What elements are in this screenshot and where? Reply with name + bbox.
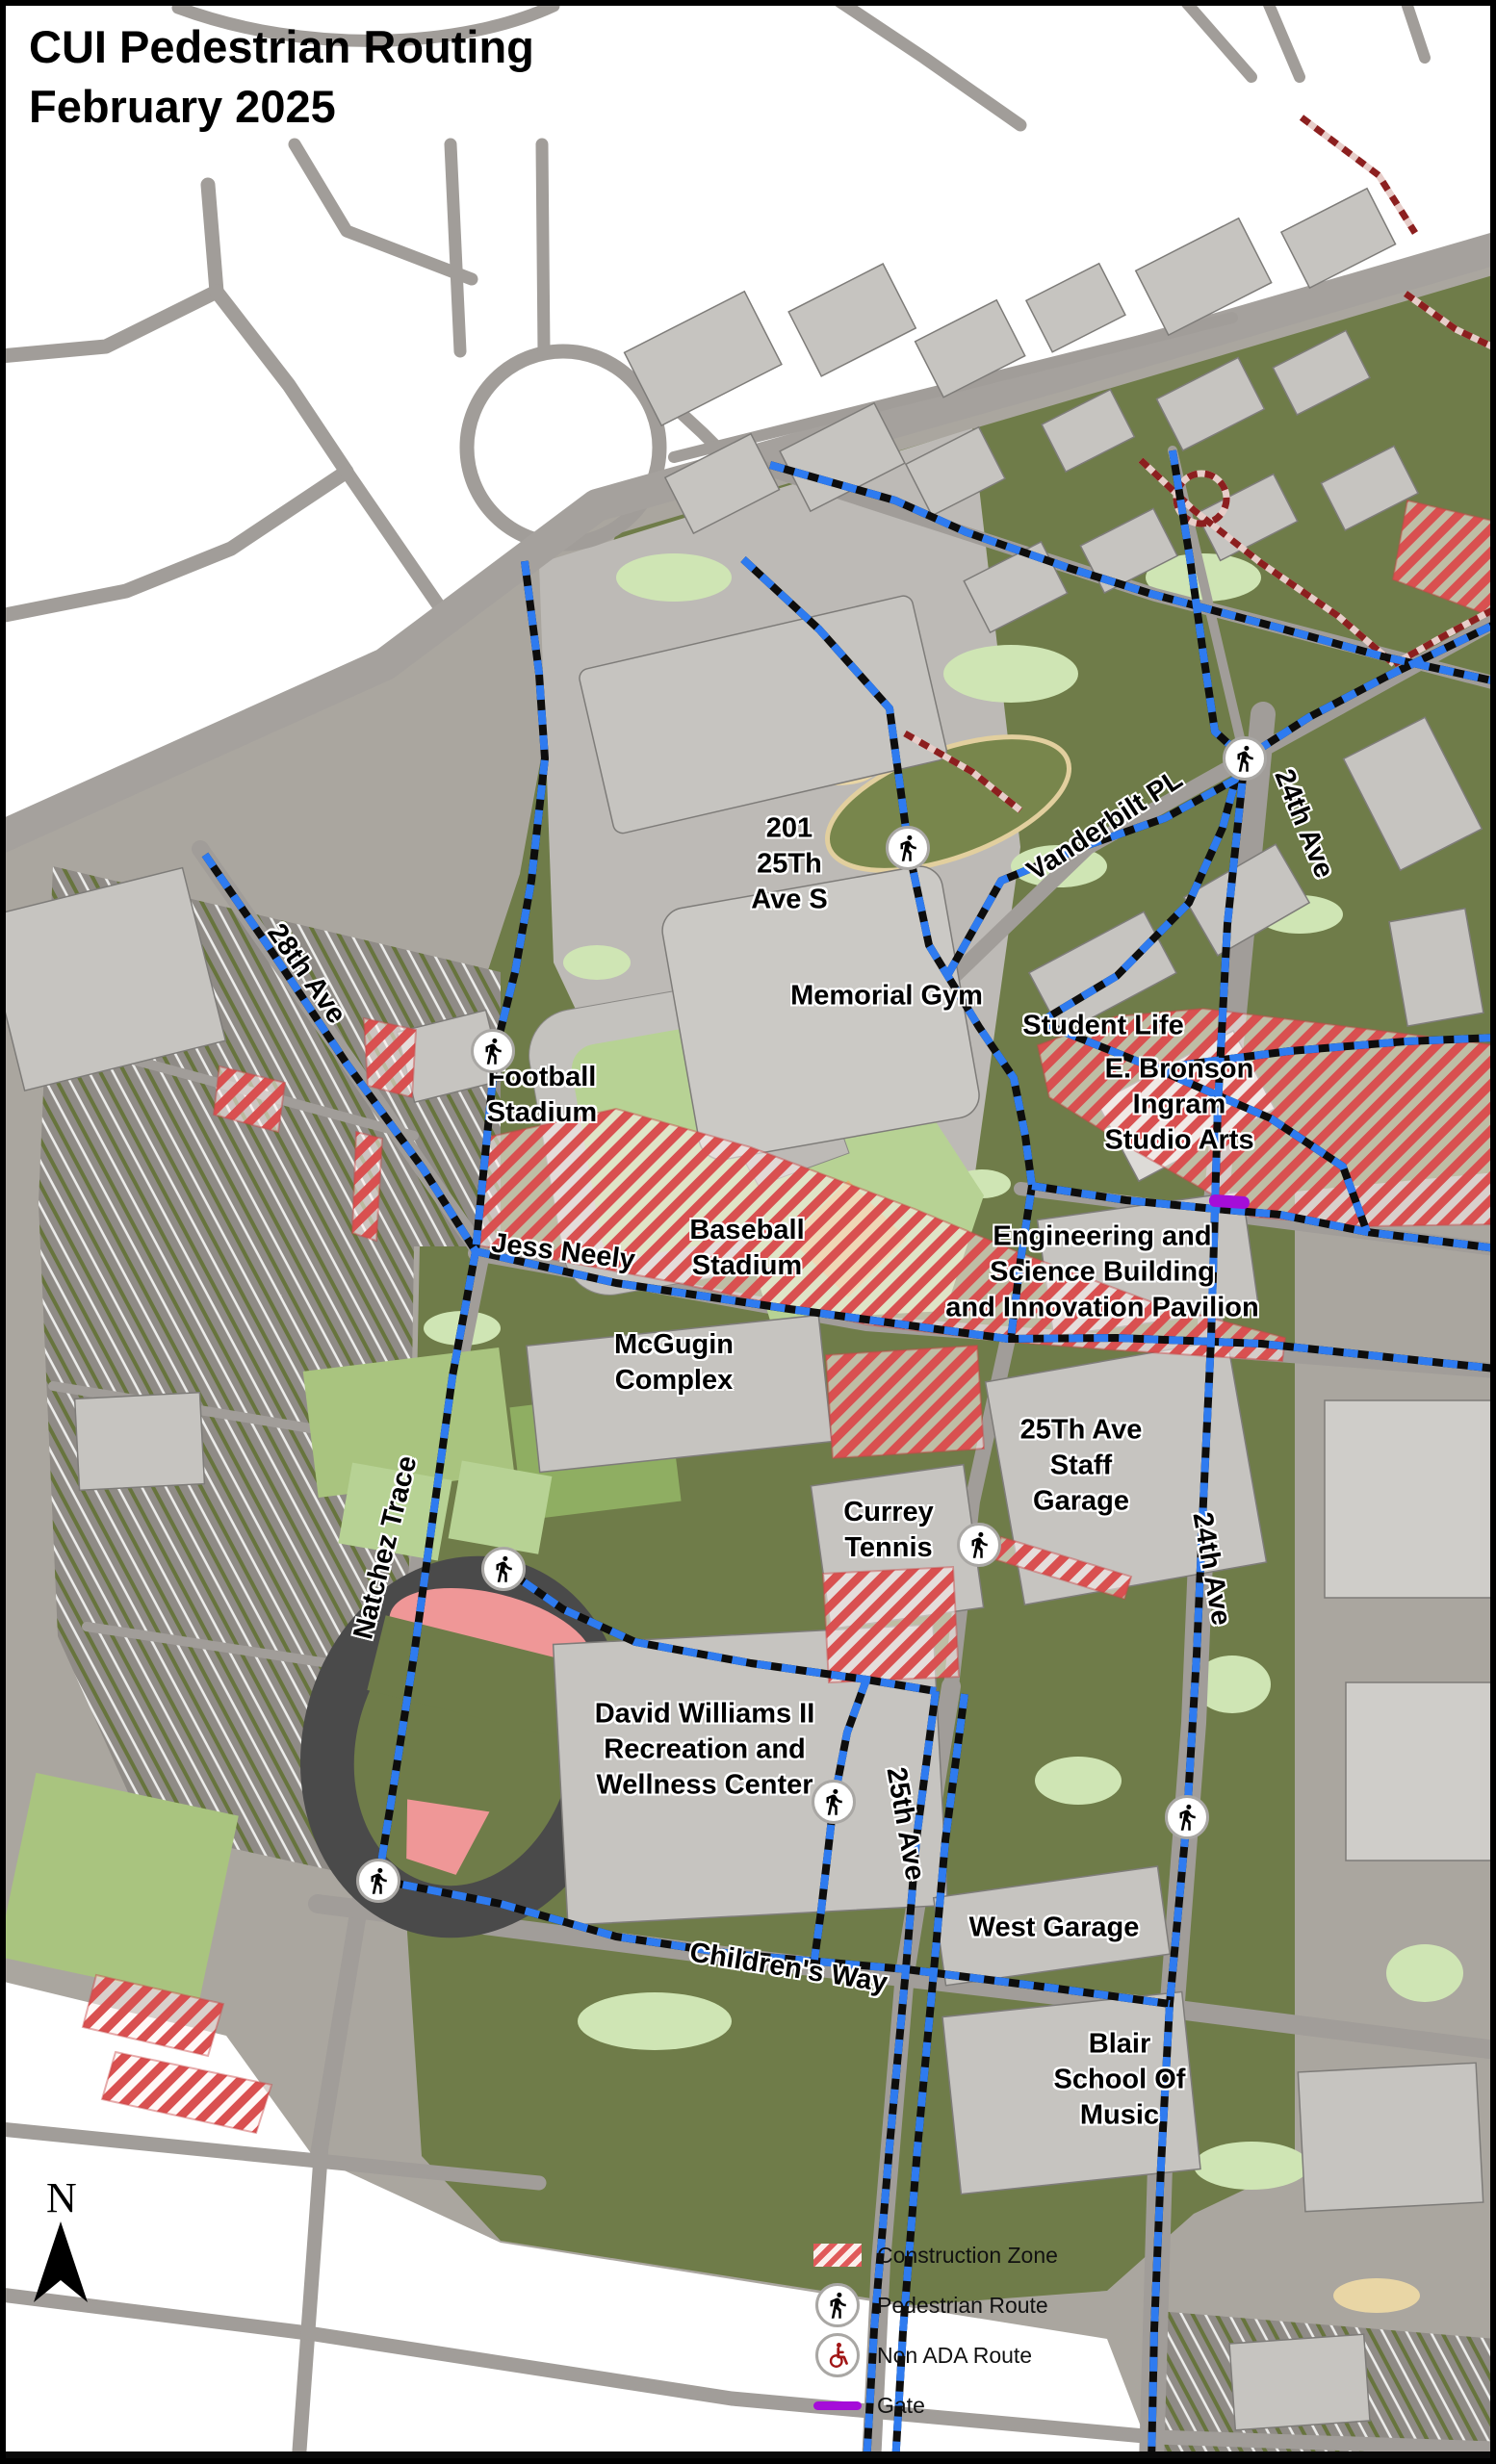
map-label-blair-school: BlairSchool OfMusic [1054,2026,1186,2133]
walking-person-icon [893,834,922,862]
walking-person-icon [478,1037,507,1065]
map-title-line2: February 2025 [29,77,534,137]
legend-row-pedestrian: Pedestrian Route [813,2288,1131,2323]
walking-person-icon [819,1787,848,1816]
walking-person-icon [965,1530,993,1559]
map-label-mcgugin-complex: McGuginComplex [614,1327,734,1399]
walking-person-icon [1173,1803,1201,1832]
legend-label-non-ada: Non ADA Route [877,2343,1032,2369]
construction-zone-swatch [813,2244,862,2267]
map-page: CUI Pedestrian Routing February 2025 N C… [0,0,1496,2464]
map-label-david-williams: David Williams IIRecreation andWellness … [595,1696,815,1803]
gate-swatch [813,2401,862,2410]
map-label-engineering-science: Engineering andScience Buildingand Innov… [945,1219,1258,1325]
map-label-student-life: Student Life [1022,1008,1184,1043]
map-label-west-garage: West Garage [969,1910,1140,1945]
wheelchair-icon [815,2333,860,2377]
pedestrian-route-icon [356,1859,400,1903]
legend-label-gate: Gate [877,2393,925,2419]
legend-label-construction: Construction Zone [877,2243,1058,2269]
pedestrian-route-icon [481,1547,526,1591]
legend-row-non-ada: Non ADA Route [813,2338,1131,2373]
walking-person-icon [1230,744,1259,773]
pedestrian-route-icon [815,2283,860,2327]
legend-row-gate: Gate [813,2388,1131,2423]
walking-person-icon [489,1554,518,1583]
pedestrian-route-icon [812,1780,856,1824]
map-label-memorial-gym: Memorial Gym [790,978,983,1014]
legend-label-pedestrian: Pedestrian Route [877,2293,1048,2319]
walking-person-icon [364,1866,393,1895]
legend-row-construction: Construction Zone [813,2238,1131,2272]
legend: Construction Zone Pedestrian Route Non A… [813,2238,1131,2438]
map-title: CUI Pedestrian Routing February 2025 [29,17,534,137]
map-label-25th-ave-staff-garage: 25Th AveStaffGarage [1020,1412,1143,1519]
walking-person-icon [823,2291,852,2320]
pedestrian-route-icon [957,1523,1001,1567]
compass-label: N [46,2173,77,2222]
pedestrian-route-icon [886,826,930,870]
map-title-line1: CUI Pedestrian Routing [29,17,534,77]
map-label-201-25th-ave-s: 20125ThAve S [751,810,828,917]
map-label-e-bronson-ingram: E. BronsonIngramStudio Arts [1104,1051,1253,1158]
map-label-currey-tennis: CurreyTennis [843,1495,934,1566]
pedestrian-route-icon [1165,1795,1209,1839]
pedestrian-route-icon [471,1029,515,1073]
pedestrian-route-icon [1223,736,1267,781]
map-label-baseball-stadium: BaseballStadium [689,1213,804,1284]
